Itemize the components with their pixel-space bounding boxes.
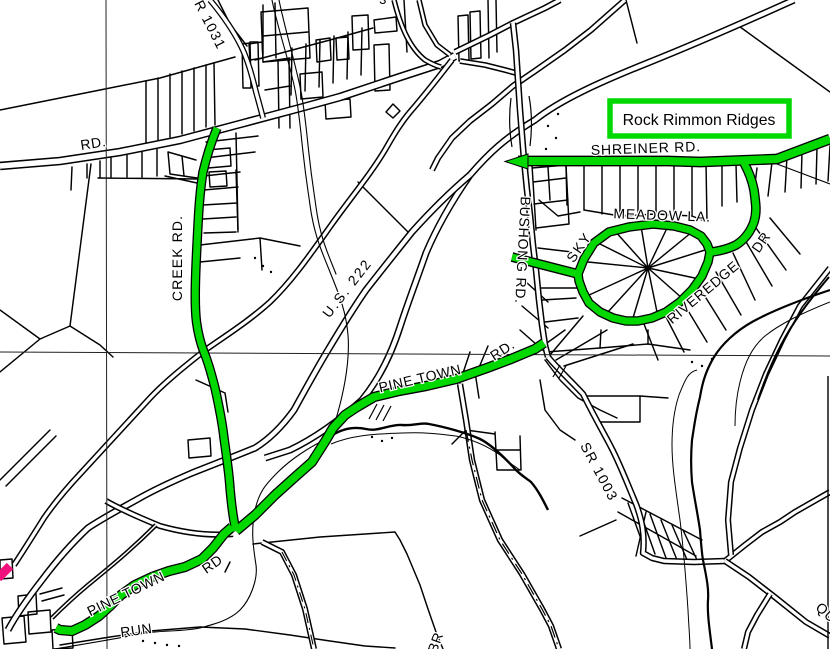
svg-text:Rock Rimmon Ridges: Rock Rimmon Ridges bbox=[623, 112, 776, 129]
svg-text:MEADOW LA.: MEADOW LA. bbox=[613, 205, 711, 224]
svg-text:CREEK RD.: CREEK RD. bbox=[169, 215, 185, 301]
svg-text:3: 3 bbox=[379, 0, 387, 7]
